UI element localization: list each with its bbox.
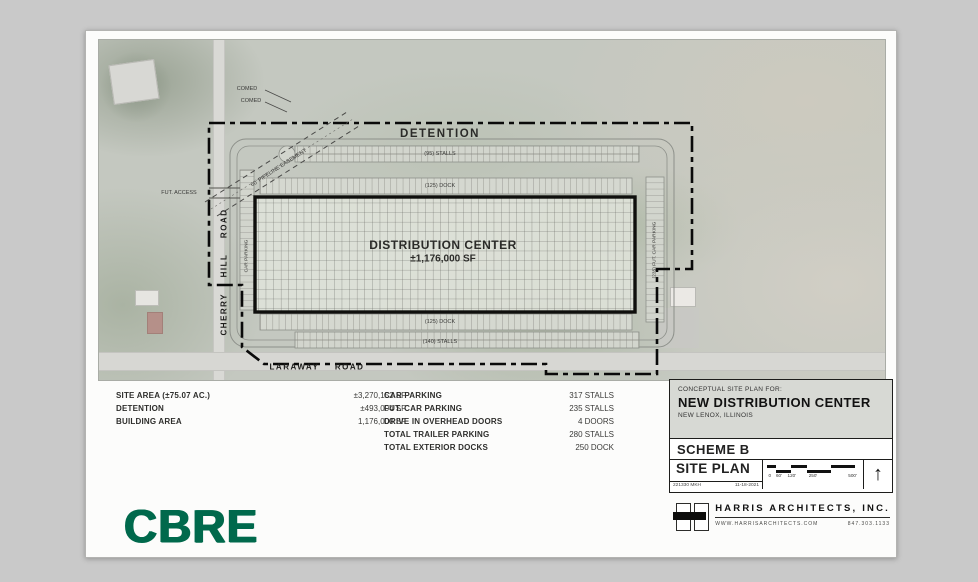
detention-label: DETENTION	[400, 128, 480, 140]
title-block-bottom: SITE PLAN 221330 MKH 11-18-2021 0 60' 12…	[670, 460, 892, 489]
comed-label-1: COMED	[237, 86, 257, 92]
parking-row-label: TOTAL EXTERIOR DOCKS	[384, 441, 488, 454]
title-block-header: CONCEPTUAL SITE PLAN FOR: NEW DISTRIBUTI…	[670, 380, 892, 439]
title-block: CONCEPTUAL SITE PLAN FOR: NEW DISTRIBUTI…	[669, 379, 893, 493]
project-location: NEW LENOX, ILLINOIS	[678, 412, 884, 419]
parking-row-label: DRIVE IN OVERHEAD DOORS	[384, 415, 502, 428]
project-name: NEW DISTRIBUTION CENTER	[678, 395, 884, 410]
site-area-table: SITE AREA (±75.07 AC.) ±3,270,152 SF DET…	[116, 389, 406, 428]
right-fut-car-parking-label: (235) FUT. CAR PARKING	[653, 222, 658, 279]
harris-architects-info: HARRIS ARCHITECTS, INC. WWW.HARRISARCHIT…	[715, 503, 890, 530]
scale-tick: 60'	[776, 473, 782, 478]
sheet-name-cell: SITE PLAN 221330 MKH 11-18-2021	[670, 460, 763, 489]
sheet-name: SITE PLAN	[670, 460, 762, 481]
laraway-road-label: LARAWAY ROAD	[270, 363, 365, 372]
parking-row-label: CAR PARKING	[384, 389, 442, 402]
harris-architects-block: HARRIS ARCHITECTS, INC. WWW.HARRISARCHIT…	[676, 503, 890, 530]
sheet-date: 11-18-2021	[735, 483, 759, 488]
architect-contact: WWW.HARRISARCHITECTS.COM 847.303.1133	[715, 521, 890, 527]
parking-row-value: 4 DOORS	[578, 415, 614, 428]
table-row: FUT. CAR PARKING 235 STALLS	[384, 402, 614, 415]
table-row: DETENTION ±493,004 SF	[116, 402, 406, 415]
table-row: CAR PARKING 317 STALLS	[384, 389, 614, 402]
table-row: SITE AREA (±75.07 AC.) ±3,270,152 SF	[116, 389, 406, 402]
scheme-label: SCHEME B	[670, 439, 892, 460]
top-stalls-label: (95) STALLS	[424, 151, 455, 157]
area-row-label: SITE AREA (±75.07 AC.)	[116, 389, 210, 402]
area-row-label: BUILDING AREA	[116, 415, 182, 428]
parking-row-label: FUT. CAR PARKING	[384, 402, 462, 415]
fut-access-label: FUT. ACCESS	[161, 190, 196, 196]
north-arrow-icon: ↑	[863, 460, 892, 489]
architect-website: WWW.HARRISARCHITECTS.COM	[715, 521, 818, 527]
cbre-logo: CBRE	[124, 499, 258, 553]
job-number: 221330 MKH	[673, 483, 701, 488]
table-row: TOTAL TRAILER PARKING 280 STALLS	[384, 428, 614, 441]
bottom-stalls-label: (140) STALLS	[423, 339, 457, 345]
parking-row-value: 235 STALLS	[569, 402, 614, 415]
table-row: TOTAL EXTERIOR DOCKS 250 DOCK	[384, 441, 614, 454]
sheet-ids: 221330 MKH 11-18-2021	[670, 481, 762, 489]
area-row-label: DETENTION	[116, 402, 164, 415]
table-row: BUILDING AREA 1,176,000 SF	[116, 415, 406, 428]
harris-architects-logo-icon	[676, 503, 707, 530]
plan-linework	[99, 40, 885, 380]
bottom-dock-label: (125) DOCK	[425, 319, 455, 325]
parking-row-value: 317 STALLS	[569, 389, 614, 402]
architect-phone: 847.303.1133	[848, 521, 890, 527]
scale-tick: 0	[768, 473, 771, 478]
site-plan-map: DETENTION (95) STALLS (125) DOCK DISTRIB…	[98, 39, 886, 381]
comed-label-2: COMED	[241, 98, 261, 104]
building-area-label: ±1,176,000 SF	[410, 254, 476, 265]
conceptual-plan-label: CONCEPTUAL SITE PLAN FOR:	[678, 386, 884, 393]
left-car-parking-label: CAR PARKING	[245, 240, 250, 273]
building-title-label: DISTRIBUTION CENTER	[369, 238, 517, 252]
drawing-sheet: DETENTION (95) STALLS (125) DOCK DISTRIB…	[85, 30, 897, 558]
table-row: DRIVE IN OVERHEAD DOORS 4 DOORS	[384, 415, 614, 428]
scale-bar	[767, 465, 859, 473]
cherry-hill-road-label: CHERRY HILL ROAD	[220, 209, 229, 336]
scale-tick: 250'	[809, 473, 818, 478]
scale-tick-labels: 0 60' 120' 250' 500'	[767, 473, 859, 481]
top-dock-label: (125) DOCK	[425, 183, 455, 189]
parking-row-label: TOTAL TRAILER PARKING	[384, 428, 489, 441]
parking-table: CAR PARKING 317 STALLS FUT. CAR PARKING …	[384, 389, 614, 454]
parking-row-value: 280 STALLS	[569, 428, 614, 441]
graphic-scale: 0 60' 120' 250' 500'	[763, 460, 863, 489]
scale-tick: 500'	[848, 473, 857, 478]
parking-row-value: 250 DOCK	[575, 441, 614, 454]
scale-tick: 120'	[788, 473, 797, 478]
architect-name: HARRIS ARCHITECTS, INC.	[715, 503, 890, 518]
